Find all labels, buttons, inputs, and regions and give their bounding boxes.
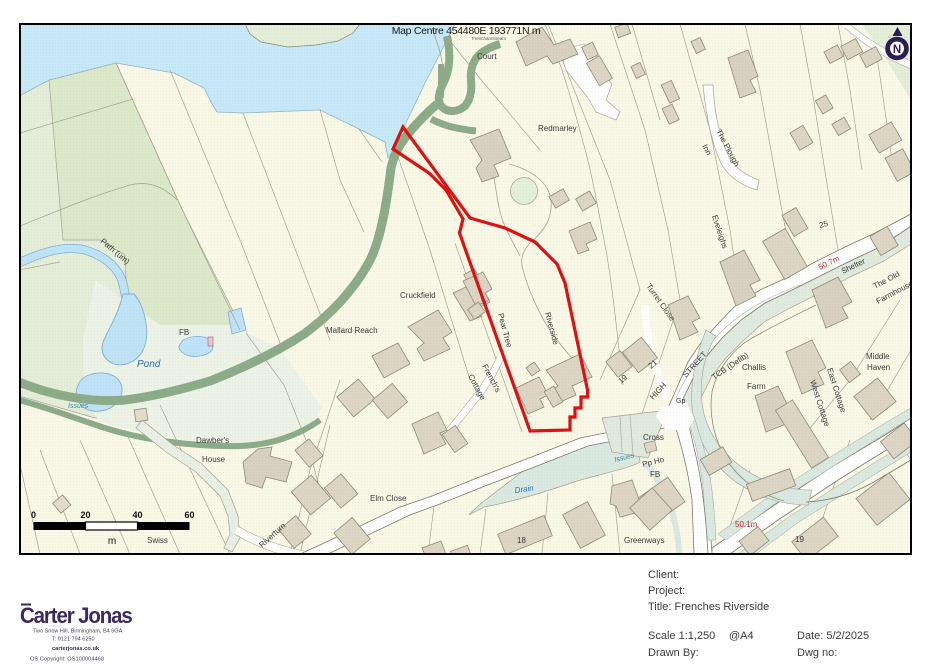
svg-text:FB: FB bbox=[650, 470, 660, 479]
svg-text:Project:: Project: bbox=[648, 585, 685, 597]
svg-text:T: 0121 794 6250: T: 0121 794 6250 bbox=[52, 637, 95, 643]
svg-text:@A4: @A4 bbox=[729, 630, 754, 642]
svg-text:N: N bbox=[893, 44, 901, 56]
svg-text:Dawber's: Dawber's bbox=[196, 436, 229, 445]
svg-text:Carter Jonas: Carter Jonas bbox=[20, 603, 132, 628]
svg-text:Elm Close: Elm Close bbox=[370, 494, 407, 503]
svg-text:Middle: Middle bbox=[866, 352, 890, 361]
svg-text:Mallard Reach: Mallard Reach bbox=[326, 326, 378, 335]
svg-text:Redmarley: Redmarley bbox=[538, 124, 577, 133]
svg-text:Greenways: Greenways bbox=[624, 536, 664, 545]
svg-text:Issues: Issues bbox=[68, 403, 89, 410]
svg-text:0: 0 bbox=[31, 510, 36, 520]
svg-text:House: House bbox=[202, 455, 226, 464]
svg-text:Client:: Client: bbox=[648, 569, 679, 581]
svg-text:Swiss: Swiss bbox=[147, 536, 168, 545]
svg-text:Two Snow Hill, Birmingham, B4: Two Snow Hill, Birmingham, B4 6GA bbox=[33, 629, 123, 635]
svg-text:Gp: Gp bbox=[676, 398, 685, 405]
svg-text:Cross: Cross bbox=[643, 433, 664, 442]
svg-text:20: 20 bbox=[80, 510, 90, 520]
svg-text:40: 40 bbox=[132, 510, 142, 520]
svg-text:Pond: Pond bbox=[137, 359, 161, 370]
svg-text:Drawn By:: Drawn By: bbox=[648, 647, 699, 659]
svg-text:Scale 1:1,250: Scale 1:1,250 bbox=[648, 630, 715, 642]
svg-text:m: m bbox=[108, 536, 116, 547]
svg-text:FB: FB bbox=[179, 328, 189, 337]
svg-text:Title: Frenches Riverside: Title: Frenches Riverside bbox=[648, 601, 769, 613]
svg-text:Map Centre 454480E 193771N m: Map Centre 454480E 193771N m bbox=[392, 25, 541, 37]
svg-text:Court: Court bbox=[477, 52, 497, 61]
svg-text:Date: 5/2/2025: Date: 5/2/2025 bbox=[797, 630, 869, 642]
svg-text:Haven: Haven bbox=[867, 363, 890, 372]
svg-text:60: 60 bbox=[184, 510, 194, 520]
svg-text:Cruckfield: Cruckfield bbox=[400, 291, 436, 300]
svg-text:Farm: Farm bbox=[747, 382, 766, 391]
svg-text:19: 19 bbox=[795, 535, 804, 544]
svg-text:Dwg no:: Dwg no: bbox=[797, 647, 837, 659]
svg-text:18: 18 bbox=[517, 536, 526, 545]
svg-text:carterjonas.co.uk: carterjonas.co.uk bbox=[52, 646, 100, 652]
svg-text:OS Copyright: OS100004468: OS Copyright: OS100004468 bbox=[30, 657, 104, 663]
svg-text:50.1m: 50.1m bbox=[735, 520, 758, 529]
svg-text:Challis: Challis bbox=[742, 363, 766, 372]
